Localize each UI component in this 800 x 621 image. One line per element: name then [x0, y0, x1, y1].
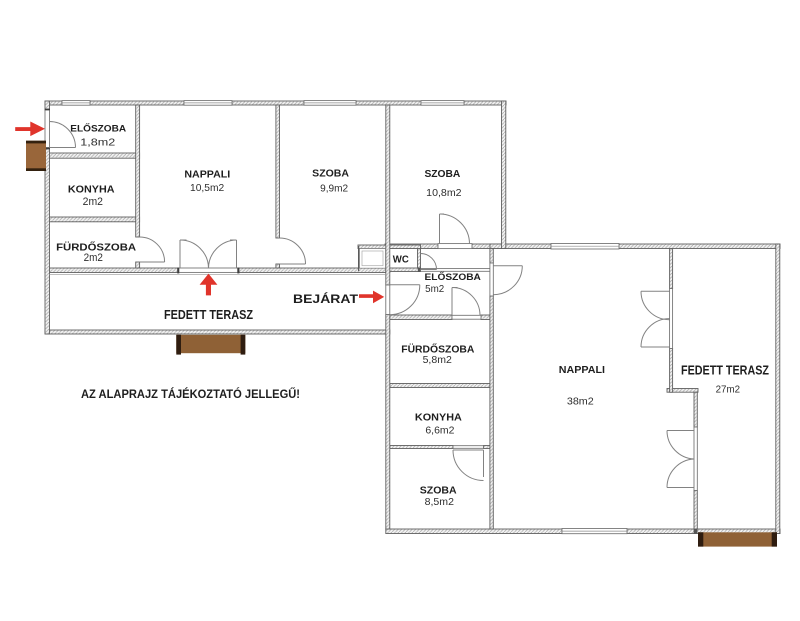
- svg-text:FEDETT TERASZ: FEDETT TERASZ: [681, 364, 769, 378]
- svg-text:FEDETT TERASZ: FEDETT TERASZ: [164, 308, 253, 322]
- svg-text:6,6m2: 6,6m2: [425, 424, 454, 436]
- svg-text:SZOBA: SZOBA: [312, 168, 349, 180]
- svg-text:10,5m2: 10,5m2: [190, 182, 224, 194]
- svg-text:ELŐSZOBA: ELŐSZOBA: [425, 271, 481, 283]
- svg-text:BEJÁRAT: BEJÁRAT: [293, 293, 358, 306]
- svg-text:NAPPALI: NAPPALI: [559, 364, 605, 376]
- svg-text:2m2: 2m2: [83, 196, 103, 208]
- svg-text:5m2: 5m2: [425, 283, 444, 295]
- svg-text:ELŐSZOBA: ELŐSZOBA: [70, 122, 126, 134]
- svg-text:SZOBA: SZOBA: [420, 484, 457, 496]
- svg-text:8,5m2: 8,5m2: [425, 496, 454, 508]
- svg-text:SZOBA: SZOBA: [424, 168, 460, 180]
- svg-text:KONYHA: KONYHA: [68, 184, 115, 196]
- svg-text:1,8m2: 1,8m2: [80, 137, 115, 149]
- svg-text:2m2: 2m2: [84, 252, 103, 264]
- svg-text:9,9m2: 9,9m2: [320, 183, 348, 195]
- svg-text:AZ ALAPRAJZ TÁJÉKOZTATÓ JELLEG: AZ ALAPRAJZ TÁJÉKOZTATÓ JELLEGŰ!: [81, 386, 300, 401]
- svg-text:WC: WC: [393, 253, 409, 265]
- svg-text:5,8m2: 5,8m2: [423, 354, 452, 366]
- svg-text:KONYHA: KONYHA: [415, 411, 462, 423]
- svg-text:10,8m2: 10,8m2: [426, 187, 462, 199]
- svg-text:NAPPALI: NAPPALI: [184, 168, 230, 180]
- svg-text:38m2: 38m2: [567, 395, 594, 407]
- svg-text:27m2: 27m2: [716, 384, 741, 396]
